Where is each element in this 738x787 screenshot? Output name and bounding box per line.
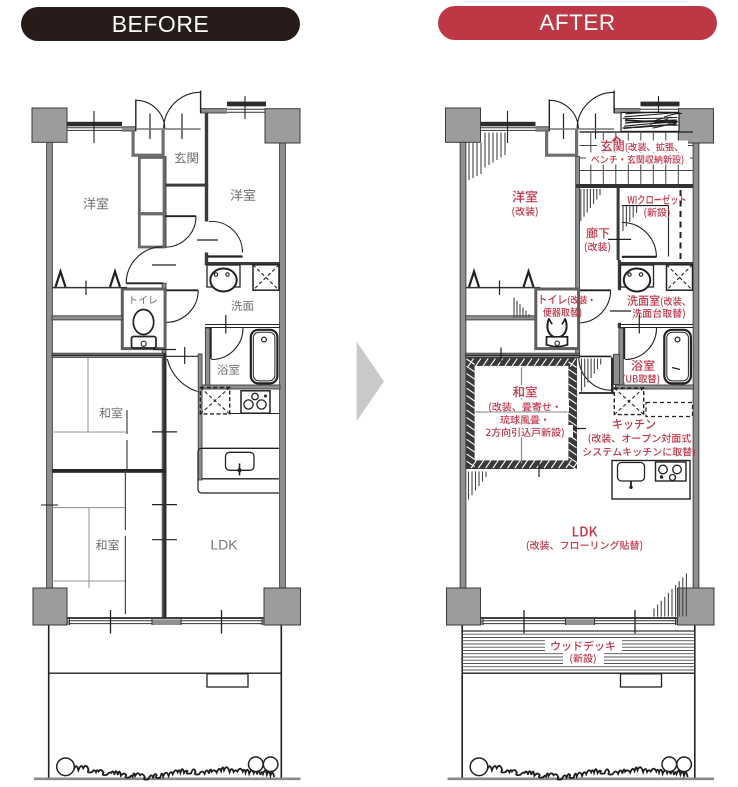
svg-text:LDK: LDK xyxy=(210,537,238,553)
